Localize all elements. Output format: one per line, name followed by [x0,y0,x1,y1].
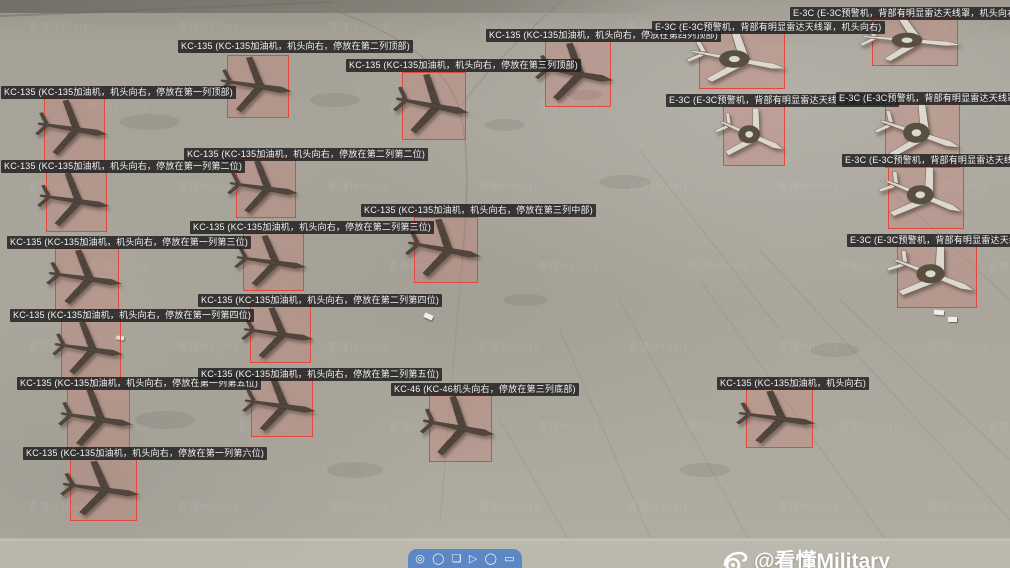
tanker-aircraft [61,456,146,523]
annotation-label-1: KC-135 (KC-135加油机，机头向右，停放在第一列顶部) [1,86,236,99]
watermark-tile: 看懂Military [778,338,840,353]
annotation-label-16: E-3C (E-3C预警机，背部有明显雷达天线罩，机头向右) [652,21,885,34]
annotation-label-14: KC-46 (KC-46机头向右，停放在第三列底部) [391,383,579,396]
bbox-kc-135-1 [44,98,105,161]
tanker-aircraft [36,95,113,163]
oval-tool-icon[interactable]: ◯ [485,554,497,565]
bbox-kc-135-12 [402,72,466,140]
watermark-tile: 看懂Military [928,338,990,353]
bbox-e-3c-17 [872,16,958,66]
watermark-tile: 看懂Military [478,178,540,193]
bbox-kc-135-22 [746,388,813,448]
rect-tool-icon[interactable]: ▭ [504,554,514,565]
annotation-label-2: KC-135 (KC-135加油机，机头向右，停放在第一列第二位) [1,160,245,173]
annotation-label-19: E-3C (E-3C预警机，背部有明显雷达天线罩，机头向右) [836,92,1010,105]
watermark-tile: 看懂Military [328,338,390,353]
bbox-kc-135-10 [250,305,311,363]
annotation-label-12: KC-135 (KC-135加油机，机头向右，停放在第三列顶部) [346,59,581,72]
watermark-tile: 看懂Military [928,498,990,513]
annotation-label-11: KC-135 (KC-135加油机，机头向右，停放在第二列第五位) [198,368,442,381]
circle-tool-icon[interactable]: ◎ [415,554,425,565]
watermark-tile: 看懂Military [478,338,540,353]
tanker-aircraft [47,245,128,312]
annotation-label-17: E-3C (E-3C预警机，背部有明显雷达天线罩，机头向右) [790,7,1010,20]
annotation-label-8: KC-135 (KC-135加油机，机头向右，停放在第二列第二位) [184,148,428,161]
bbox-kc-135-3 [55,248,119,310]
watermark-tile: 看懂Military [328,498,390,513]
bbox-kc-135-4 [61,319,121,379]
watermark-tile: 看懂Military [178,498,240,513]
watermark-tile: 看懂Military [988,258,1010,273]
watermark-tile: 看懂Military [838,418,900,433]
watermark-tile: 看懂Military [478,498,540,513]
annotation-label-9: KC-135 (KC-135加油机，机头向右，停放在第二列第三位) [190,221,434,234]
watermark-tile: 看懂Military [178,18,240,33]
watermark-tile: 看懂Military [778,178,840,193]
annotation-label-20: E-3C (E-3C预警机，背部有明显雷达天线罩，机头向右) [842,154,1010,167]
watermark-tile: 看懂Military [628,178,690,193]
annotation-label-3: KC-135 (KC-135加油机，机头向右，停放在第一列第三位) [7,236,251,249]
vehicle [423,312,433,320]
bbox-kc-135-15 [545,41,611,107]
annotation-label-4: KC-135 (KC-135加油机，机头向右，停放在第一列第四位) [10,309,254,322]
bbox-kc-135-2 [46,171,107,232]
watermark-tile: 看懂Military [628,498,690,513]
bbox-e-3c-20 [888,166,964,229]
bbox-kc-46-14 [429,394,492,462]
watermark-tile: 看懂Military [688,258,750,273]
tanker-aircraft [394,69,475,143]
annotation-label-7: KC-135 (KC-135加油机，机头向右，停放在第二列顶部) [178,40,413,53]
tanker-aircraft [421,391,500,465]
annotation-label-21: E-3C (E-3C预警机，背部有明显雷达天线罩，机头向右) [847,234,1010,247]
e3c-awacs-aircraft [878,163,974,231]
tanker-aircraft [59,384,138,455]
watermark-tile: 看懂Military [178,338,240,353]
bbox-kc-135-9 [243,233,304,291]
e3c-awacs-aircraft [715,104,793,169]
crop-tool-icon[interactable]: ❏ [452,554,462,565]
arrow-tool-icon[interactable]: ▷ [469,554,477,565]
ellipse-tool-icon[interactable]: ◯ [432,554,444,565]
watermark-tile: 看懂Military [328,178,390,193]
e3c-awacs-aircraft [886,242,987,310]
satellite-image: 看懂Military看懂Military看懂Military看懂Military… [0,0,1010,568]
watermark-tile: 看懂Military [988,418,1010,433]
vehicle [948,317,957,322]
tanker-aircraft [38,168,115,234]
annotation-label-22: KC-135 (KC-135加油机，机头向右) [717,377,869,390]
weibo-eye-icon [722,549,748,568]
watermark-tile: 看懂Military [628,338,690,353]
watermark-tile: 看懂Military [538,258,600,273]
bbox-kc-135-6 [70,459,137,521]
bbox-kc-135-7 [227,55,289,118]
watermark-tile: 看懂Military [28,18,90,33]
account-handle: @看懂Military [754,549,890,568]
tanker-aircraft [53,317,128,382]
watermark-tile: 看懂Military [328,18,390,33]
bbox-e-3c-18 [723,106,785,166]
tanker-aircraft [737,386,822,451]
bbox-kc-135-5 [67,387,130,452]
image-edit-toolbar[interactable]: ◎◯❏▷◯▭ [408,549,522,568]
watermark-tile: 看懂Military [538,418,600,433]
annotation-label-13: KC-135 (KC-135加油机，机头向右，停放在第三列中部) [361,204,596,217]
watermark-tile: 看懂Military [778,498,840,513]
tanker-aircraft [536,38,619,110]
bbox-e-3c-21 [897,245,977,308]
annotation-label-10: KC-135 (KC-135加油机，机头向右，停放在第二列第四位) [198,294,442,307]
annotation-label-6: KC-135 (KC-135加油机，机头向右，停放在第一列第六位) [23,447,267,460]
account-watermark: @看懂Military [722,549,890,568]
